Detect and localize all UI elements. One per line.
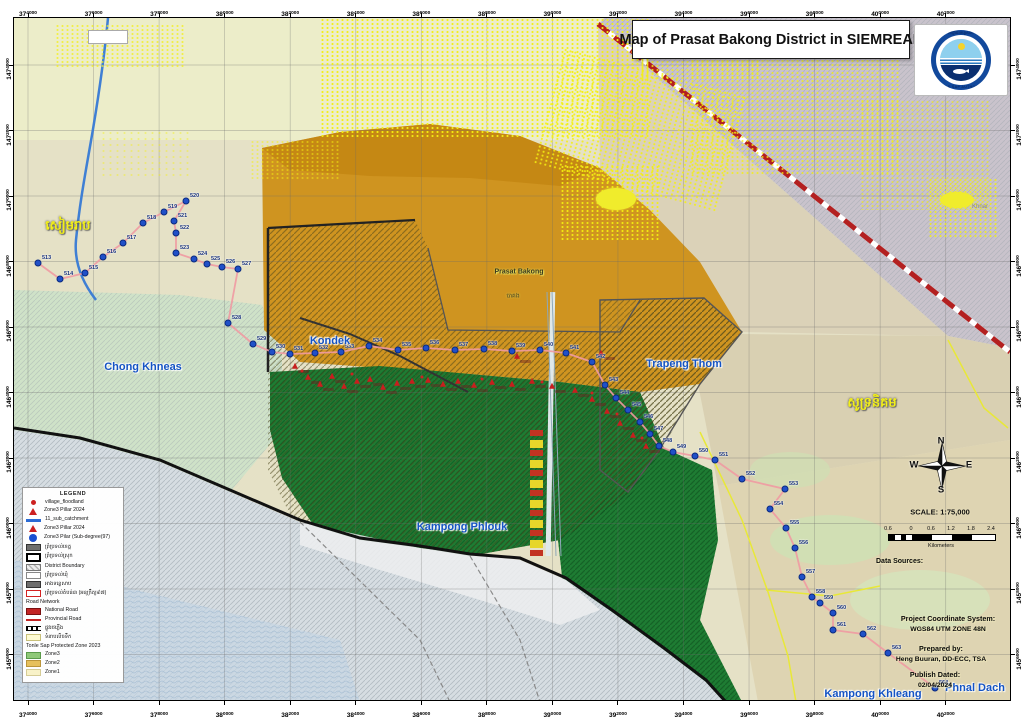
pillar-dot-label: 551 [719,452,728,458]
zone3-pillar-icon [549,383,555,389]
map-title: Map of Prasat Bakong District in SIEMREA… [620,32,923,48]
dot-blue-swatch-icon [29,534,37,542]
pillar-dot [82,270,89,277]
pillar-dot [173,250,180,257]
northing-label: 1468000 [0,251,16,281]
grid-tick [814,13,815,18]
legend-item-label: ព្រំប្រទល់ឃុំ [45,573,68,579]
easting-label: 390000 [543,704,561,721]
pillar-tiny-label [477,389,488,392]
settlement-blob [596,188,636,210]
northing-label: 1458000 [0,578,16,608]
pillar-dot [100,254,107,261]
easting-label: 384000 [347,704,365,721]
easting-label: 382000 [281,704,299,721]
grid-tick [9,589,14,590]
pillar-dot [120,240,127,247]
easting-label: 376000 [85,704,103,721]
place-label: Kampong Phlouk [417,521,507,533]
grid-tick [355,700,356,705]
easting-label: 402000 [937,704,955,721]
grid-tick [290,700,291,705]
grid-tick [749,13,750,18]
legend-item: ព្រំប្រទល់ស្រុក [26,553,120,562]
pillar-tiny-label [649,450,660,453]
zone3-pillar-icon [617,420,623,426]
legend-item-label: Zone2 [45,661,60,667]
village-dot [481,378,484,381]
northing-label: 1460000 [0,513,16,543]
pillar-dot [225,320,232,327]
grid-tick [1010,65,1015,66]
data-sources-heading: Data Sources: [876,558,1022,565]
pillar-dot-label: 531 [294,346,303,352]
village-dot [616,413,619,416]
grid-tick [1010,589,1015,590]
easting-label: 394000 [675,3,693,21]
sun-icon [958,43,965,50]
pillar-dot-label: 555 [790,520,799,526]
legend-item-label: National Road [45,608,78,614]
place-label: សៀមរាប [45,218,90,237]
zone3-pillar-icon [341,383,347,389]
pillar-tiny-label [495,386,506,389]
legend-item: 11_sub_catchment [26,517,120,524]
scale-bar-label: 1.8 [967,526,975,532]
tri-red-swatch-icon [29,525,37,532]
grid-tick [486,700,487,705]
grid-tick [880,13,881,18]
scale-bar-label: 0 [909,526,912,532]
legend-item: ព្រំប្រទល់តំបន់៣ (អនុក្រឹត្យ៩៧) [26,590,120,597]
easting-label: 402000 [937,3,955,21]
zone3-pillar-icon [509,381,515,387]
place-label: សូទ្រនិគម [847,395,896,414]
grid-tick [945,13,946,18]
scale-bar-label: 2.4 [987,526,995,532]
easting-label: 388000 [478,3,496,21]
pillar-dot-label: 534 [373,338,382,344]
grid-tick [9,458,14,459]
legend-item-label: village_floodland [45,500,84,506]
grid-tick [814,700,815,705]
grid-tick [9,130,14,131]
grid-tick [1010,261,1015,262]
northing-label: 1462000 [1008,447,1024,477]
northing-label: 1460000 [1008,513,1024,543]
zone3-pillar-icon [425,377,431,383]
pillar-tiny-label [604,357,615,360]
legend-item: Zone3 Pilar (Sub-degree(97) [26,534,120,542]
zone3-pillar-icon [367,376,373,382]
grid-tick [552,700,553,705]
easting-label: 376000 [85,3,103,21]
northing-label: 1464000 [0,382,16,412]
legend-item-label: Provincial Road [45,617,81,623]
compass-e-label: E [966,460,972,471]
pillar-tiny-label [578,394,589,397]
zone3-pillar-icon [380,384,386,390]
grid-tick [1010,654,1015,655]
legend-item-label: Zone1 [45,670,60,676]
pillar-dot [647,431,654,438]
pillar-dot-label: 541 [570,345,579,351]
northing-label: 1472000 [1008,120,1024,150]
pillar-tiny-label [323,388,334,391]
easting-label: 390000 [543,3,561,21]
northing-label: 1466000 [0,316,16,346]
agency-logo: អាជ្ញាធរទន្លេសាប TONLE SAP AUTHORITY [914,24,1008,96]
pillar-dot-label: 517 [127,235,136,241]
easting-label: 384000 [347,3,365,21]
pillar-dot [423,345,430,352]
pillar-dot-label: 527 [242,261,251,267]
grid-tick [552,13,553,18]
grid-tick [9,654,14,655]
easting-label: 374000 [19,704,37,721]
small-callout [88,30,128,44]
legend-item-label: Zone3 Pillar 2024 [44,526,85,532]
pillar-dot-label: 528 [232,315,241,321]
pillar-dot-label: 549 [677,444,686,450]
northing-label: 1474000 [1008,54,1024,84]
pillar-dot [613,395,620,402]
pillar-dot-label: 553 [789,481,798,487]
pillar-dot-label: 524 [198,251,207,257]
logo-khmer-text: អាជ្ញាធរទន្លេសាប [931,30,991,36]
easting-label: 378000 [150,3,168,21]
pillar-dot-label: 525 [211,256,220,262]
pillar-dot [625,407,632,414]
legend-heading: LEGEND [26,491,120,497]
legend-item: ទំនាបលិចទឹក [26,634,120,641]
logo-english-text: TONLE SAP AUTHORITY [931,85,991,89]
easting-label: 392000 [609,3,627,21]
settlement-blob [940,192,974,208]
grid-tick [683,700,684,705]
grid-tick [28,13,29,18]
grid-tick [749,700,750,705]
zone3-pillar-icon [604,408,610,414]
zone3-pillar-icon [589,396,595,402]
pillar-dot [656,443,663,450]
legend-item: village_floodland [26,499,120,506]
pillar-dot [235,266,242,273]
pillar-dot [161,209,168,216]
pillar-dot-label: 530 [276,344,285,350]
box-orange-swatch-icon [26,660,41,667]
northing-label: 1468000 [1008,251,1024,281]
legend-item: Zone1 [26,669,120,676]
village-dot [301,370,304,373]
grid-tick [9,327,14,328]
northing-label: 1456000 [0,644,16,674]
easting-label: 400000 [871,3,889,21]
legend-item-label: 11_sub_catchment [45,517,88,523]
legend-section-header: Road Network [26,600,120,606]
northing-label: 1466000 [1008,316,1024,346]
pillar-dot [712,457,719,464]
pillar-dot [171,218,178,225]
pillar-dot [563,350,570,357]
pillar-dot-label: 554 [774,501,783,507]
pillar-dot [782,486,789,493]
pillar-dot [140,220,147,227]
grid-tick [1010,196,1015,197]
pillar-dot-label: 547 [654,426,663,432]
zone3-pillar-icon [440,381,446,387]
northing-label: 1464000 [1008,382,1024,412]
legend-item: Zone3 Pillar 2024 [26,508,120,515]
northing-label: 1472000 [0,120,16,150]
box-redline-swatch-icon [26,590,41,597]
zone3-pillar-icon [514,353,520,359]
legend-item-label: ព្រំប្រទល់តំបន់៣ (អនុក្រឹត្យ៩៧) [45,591,106,597]
place-label: Kondek [310,335,350,347]
pillar-dot-label: 560 [837,605,846,611]
easting-label: 396000 [740,704,758,721]
easting-label: 394000 [675,704,693,721]
easting-label: 392000 [609,704,627,721]
northing-label: 1474000 [0,54,16,84]
legend-item: Zone3 [26,652,120,659]
pillar-dot [830,627,837,634]
easting-label: 386000 [412,3,430,21]
grid-tick [1010,130,1015,131]
box-red-swatch-icon [26,608,41,615]
pillar-dot [589,359,596,366]
pillar-dot-label: 545 [632,402,641,408]
grid-tick [1010,392,1015,393]
grid-tick [421,13,422,18]
legend-item-label: ទំនាបលិចទឹក [45,635,71,641]
legend-item: ព្រំប្រទល់ខេត្ត [26,544,120,551]
line-red-swatch-icon [26,619,41,621]
prepared-by-block: Prepared by: Heng Buuran, DD-ECC, TSA [896,644,986,664]
pillar-dot-label: 543 [609,377,618,383]
pillar-dot-label: 539 [516,343,525,349]
legend-item-label: Zone3 [45,652,60,658]
pillar-dot [183,198,190,205]
pillar-dot-label: 552 [746,471,755,477]
pillar-dot [338,349,345,356]
pillar-dot-label: 546 [644,414,653,420]
zone3-pillar-icon [329,373,335,379]
box-grayhatch-swatch-icon [26,564,41,571]
pillar-dot [269,349,276,356]
box-lightyellow-swatch-icon [26,669,41,676]
zone3-pillar-icon [292,363,298,369]
grid-tick [28,700,29,705]
northing-label: 1462000 [0,447,16,477]
scale-bar [888,534,996,541]
pillar-dot-label: 538 [488,341,497,347]
pillar-dot-label: 542 [596,354,605,360]
zone3-pillar-icon [409,378,415,384]
pillar-dot [452,347,459,354]
map-title-box: Map of Prasat Bakong District in SIEMREA… [632,20,910,59]
grid-tick [617,13,618,18]
box-green-swatch-icon [26,652,41,659]
pillar-dot [173,230,180,237]
pillar-dot-label: 556 [799,540,808,546]
legend-item: Zone3 Pillar 2024 [26,525,120,532]
pillar-dot [481,346,488,353]
village-dot [351,373,354,376]
pillar-dot-label: 519 [168,204,177,210]
grid-tick [224,13,225,18]
map-frame-clip: Map of Prasat Bakong District in SIEMREA… [0,0,1024,721]
place-label: បាគង [506,292,519,301]
pillar-tiny-label [623,427,634,430]
easting-label: 380000 [216,704,234,721]
pillar-dot [830,610,837,617]
grid-tick [421,700,422,705]
grid-tick [290,13,291,18]
pillar-dot-label: 523 [180,245,189,251]
pillar-dot [860,631,867,638]
pillar-dot-label: 514 [64,271,73,277]
pillar-tiny-label [555,390,566,393]
pillar-tiny-label [515,388,526,391]
grid-tick [9,261,14,262]
projection-block: Project Coordinate System: WGS84 UTM ZON… [901,614,995,634]
easting-label: 382000 [281,3,299,21]
legend-item: អាងទន្លេសាប [26,581,120,588]
compass-s-label: S [938,485,944,496]
zone3-pillar-icon [529,378,535,384]
grid-tick [224,700,225,705]
grid-tick [93,13,94,18]
grid-tick [1010,523,1015,524]
pillar-dot [395,347,402,354]
published-block: Publish Dated: 02/04/2024 [910,670,960,690]
zone3-pillar-icon [572,387,578,393]
pillar-tiny-label [520,360,531,363]
legend-item-label: District Boundary [45,564,85,570]
place-label: Kampong Khleang [824,688,921,700]
box-paleyellow-swatch-icon [26,634,41,641]
pillar-dot-label: 562 [867,626,876,632]
pillar-dot [219,264,226,271]
legend-section-header: Tonle Sap Protected Zone 2023 [26,644,120,650]
legend-item: ព្រំប្រទល់ឃុំ [26,572,120,579]
easting-label: 400000 [871,704,889,721]
pillar-dot [602,382,609,389]
northing-label: 1456000 [1008,644,1024,674]
village-dot [541,381,544,384]
line-blue-swatch-icon [26,519,41,522]
place-label: Trapeng Thom [646,358,722,370]
pillar-dot [692,453,699,460]
pillar-dot [809,594,816,601]
zone3-pillar-icon [455,378,461,384]
pillar-dot-label: 537 [459,342,468,348]
zone3-pillar-icon [317,381,323,387]
pillar-tiny-label [535,385,546,388]
pillar-dot [57,276,64,283]
legend-item-label: ផ្លូវរថភ្លើង [45,626,63,632]
pillar-dot-label: 515 [89,265,98,271]
grid-tick [9,65,14,66]
pillar-dot-label: 559 [824,595,833,601]
legend-item-label: Zone3 Pillar 2024 [44,508,85,514]
legend: LEGEND village_floodlandZone3 Pillar 202… [22,487,124,683]
pillar-dot-label: 544 [620,390,629,396]
pillar-tiny-label [415,385,426,388]
map-sheet: Map of Prasat Bakong District in SIEMREA… [0,0,1024,721]
pillar-dot [537,347,544,354]
place-label: Khnar [972,204,988,210]
grid-tick [9,523,14,524]
zone3-pillar-icon [354,378,360,384]
easting-label: 398000 [806,3,824,21]
grid-tick [486,13,487,18]
box-blackline-swatch-icon [26,553,41,562]
easting-label: 388000 [478,704,496,721]
fish-icon [953,69,966,74]
pillar-dot-label: 520 [190,193,199,199]
pillar-dot [191,256,198,263]
easting-label: 398000 [806,704,824,721]
legend-item: Zone2 [26,660,120,667]
legend-item: District Boundary [26,564,120,571]
grid-tick [355,13,356,18]
pillar-tiny-label [347,390,358,393]
legend-item: Provincial Road [26,616,120,623]
scale-unit: Kilometers [928,543,954,549]
data-sources-block: Data Sources: [876,558,1022,566]
pillar-dot-label: 529 [257,336,266,342]
legend-item-label: អាងទន្លេសាប [45,582,71,588]
zone3-pillar-icon [489,379,495,385]
pillar-tiny-label [386,391,397,394]
pillar-dot [799,574,806,581]
grid-tick [159,13,160,18]
logo-circle-icon: អាជ្ញាធរទន្លេសាប TONLE SAP AUTHORITY [931,30,991,90]
village-dot [421,376,424,379]
northing-label: 1470000 [0,185,16,215]
pillar-dot-label: 518 [147,215,156,221]
grid-tick [9,196,14,197]
place-label: Prasat Bakong [494,269,543,276]
easting-label: 380000 [216,3,234,21]
village-dot [591,392,594,395]
pillar-dot [783,525,790,532]
easting-label: 386000 [412,704,430,721]
legend-item: National Road [26,608,120,615]
easting-label: 396000 [740,3,758,21]
zone3-pillar-icon [471,382,477,388]
pillar-tiny-label [360,385,371,388]
scale-bar-label: 1.2 [947,526,955,532]
compass-n-label: N [938,436,945,447]
dot-red-swatch-icon [31,500,36,505]
zone3-pillar-icon [394,380,400,386]
pillar-dot-label: 535 [402,342,411,348]
grid-tick [683,13,684,18]
pillar-dot [287,351,294,358]
pillar-dot [885,650,892,657]
speckle-cluster [100,130,190,180]
pillar-dot [767,506,774,513]
box-darkgray-swatch-icon [26,544,41,551]
pillar-tiny-label [400,387,411,390]
zone3-pillar-icon [643,443,649,449]
legend-item-label: ព្រំប្រទល់ខេត្ត [45,545,71,551]
scale-text: SCALE: 1:75,000 [910,508,970,517]
line-xhatch-swatch-icon [26,626,41,631]
